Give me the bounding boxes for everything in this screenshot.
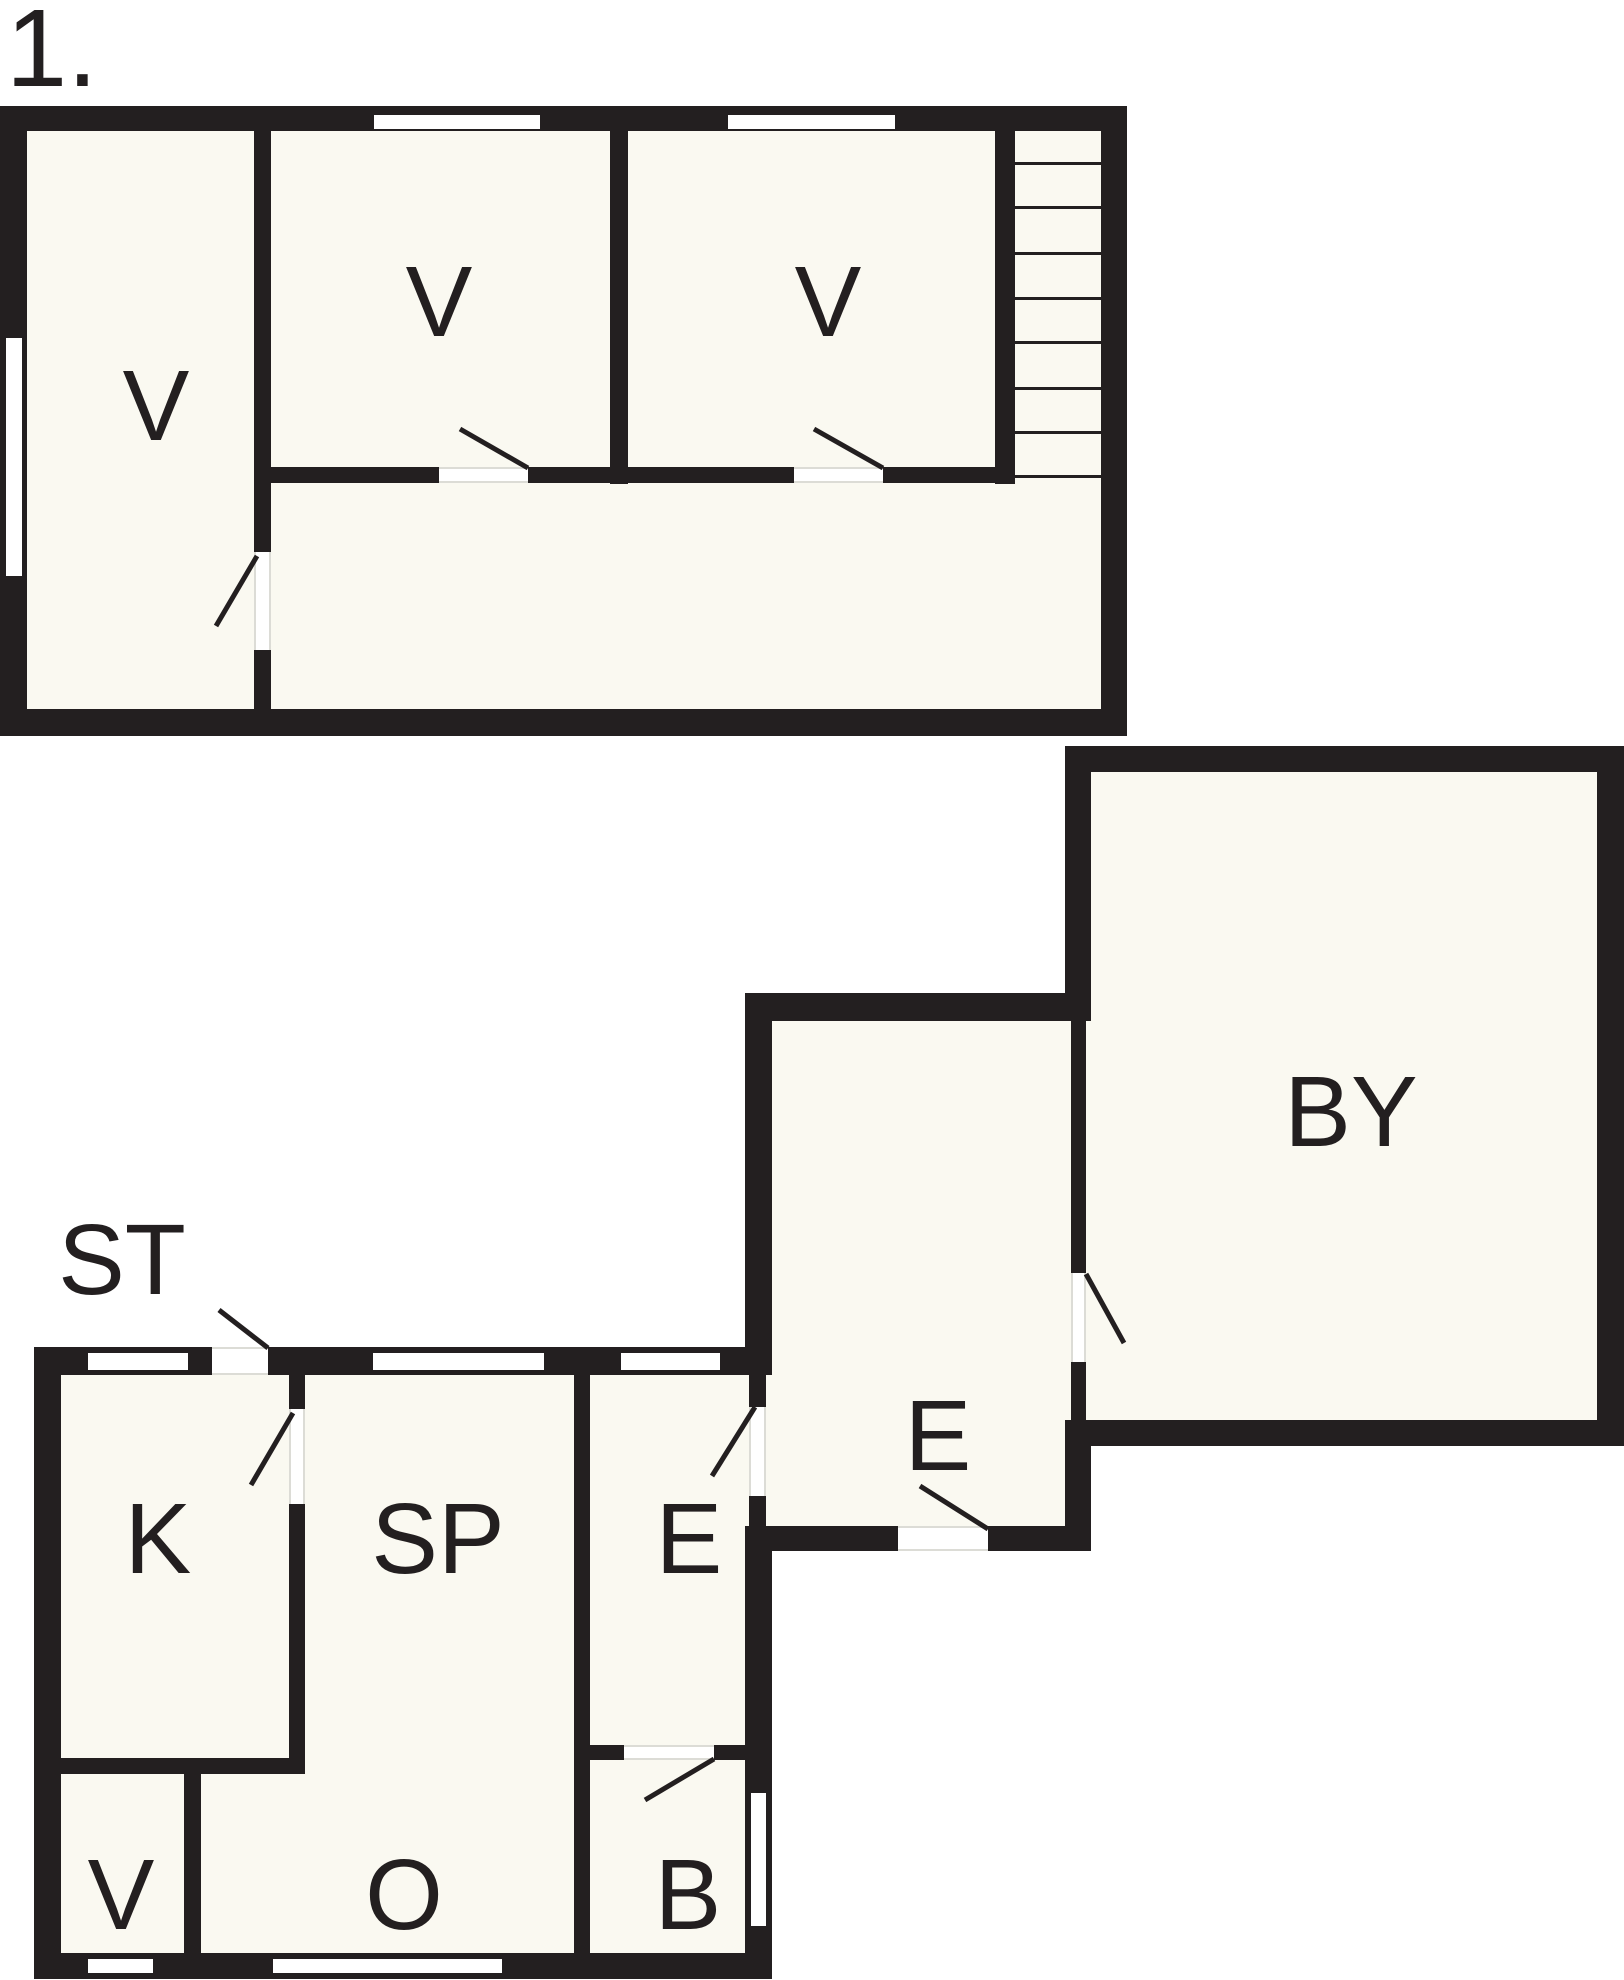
svg-text:1.: 1.	[6, 0, 98, 110]
svg-text:K: K	[125, 1483, 192, 1595]
svg-text:BY: BY	[1284, 1056, 1417, 1168]
svg-text:SP: SP	[371, 1483, 504, 1595]
svg-text:V: V	[88, 1839, 155, 1951]
svg-text:V: V	[123, 350, 190, 462]
svg-text:E: E	[656, 1483, 723, 1595]
svg-text:V: V	[406, 246, 473, 358]
svg-text:V: V	[795, 246, 862, 358]
svg-text:B: B	[655, 1839, 722, 1951]
svg-text:E: E	[905, 1380, 972, 1492]
svg-text:O: O	[365, 1839, 443, 1951]
svg-text:ST: ST	[58, 1204, 186, 1316]
